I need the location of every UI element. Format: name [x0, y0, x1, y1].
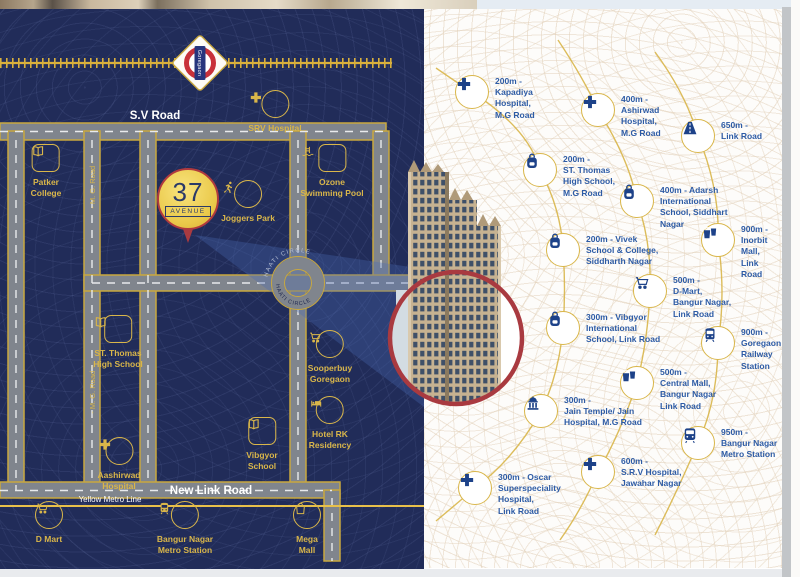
landmark-label: Patker College — [31, 177, 62, 199]
plus-icon — [261, 90, 289, 118]
map-landmark-st-thomas-high-school: ST. Thomas High School — [93, 315, 143, 370]
poi-label: 650m - Link Road — [721, 119, 762, 142]
landmark-label: Aashirwad Hospital — [98, 470, 141, 492]
map-landmark-d-mart: D Mart — [35, 501, 63, 545]
scrollbar[interactable] — [782, 7, 791, 577]
bottom-margin — [0, 569, 800, 577]
poi-label: 300m - Vibgyor International School, Lin… — [586, 311, 660, 346]
cart-icon — [35, 501, 63, 529]
poi-ashirwad-hospital: 400m - Ashirwad Hospital, M.G Road — [581, 93, 661, 139]
backpack-icon — [546, 233, 580, 267]
building-photo-sliver — [0, 0, 477, 9]
road-label-mg-road-lower: - M. G. Road - — [88, 366, 97, 414]
poi-jain-temple-jain-hospital: 300m - Jain Temple/ Jain Hospital, M.G R… — [524, 394, 642, 429]
map-graphic: HAATI CIRCLE HAATI CIRCLE Goregaon S.V R… — [0, 9, 424, 570]
station-logo-text: Goregaon — [196, 50, 202, 76]
plus-icon — [581, 455, 615, 489]
metro-icon — [681, 426, 715, 460]
poi-srv-hospital: 600m - S.R.V Hospital, Jawahar Nagar — [581, 455, 681, 490]
runner-icon — [234, 180, 262, 208]
cart-icon — [316, 330, 344, 358]
poi-label: 900m - Inorbit Mall, Link Road — [741, 223, 782, 280]
top-photo-strip — [0, 0, 800, 9]
plus-icon — [455, 75, 489, 109]
location-map-section: HAATI CIRCLE HAATI CIRCLE Goregaon S.V R… — [0, 0, 800, 577]
map-landmark-mega-mall: Mega Mall — [293, 501, 321, 556]
book-icon — [248, 417, 276, 445]
poi-label: 400m - Ashirwad Hospital, M.G Road — [621, 93, 661, 139]
project-pin: 37 AVENUE — [157, 168, 219, 243]
poi-label: 600m - S.R.V Hospital, Jawahar Nagar — [621, 455, 681, 490]
train-icon — [701, 326, 735, 360]
project-logo-number: 37 — [173, 181, 204, 204]
cart-icon — [633, 274, 667, 308]
road-label-mg-road-upper: - M. G. Road - — [88, 161, 97, 209]
poi-kapadiya-hospital: 200m - Kapadiya Hospital, M.G Road — [455, 75, 535, 121]
landmark-label: SRV Hospital — [248, 123, 301, 134]
poi-label: 300m - Oscar Superspeciality Hospital, L… — [498, 471, 561, 517]
landmark-label: Mega Mall — [296, 534, 318, 556]
road-label-sv-road: S.V Road — [130, 110, 180, 122]
plus-icon — [458, 471, 492, 505]
poi-label: 950m - Bangur Nagar Metro Station — [721, 426, 777, 461]
mall-icon — [701, 223, 735, 257]
road-label-new-link-road: New Link Road — [170, 485, 252, 497]
poi-goregaon-railway-station: 900m - Goregaon Railway Station — [701, 326, 781, 372]
map-landmark-bangur-nagar-metro-station: Bangur Nagar Metro Station — [157, 501, 213, 556]
pool-icon — [318, 144, 346, 172]
landmark-label: Ozone Swimming Pool — [300, 177, 363, 199]
bag-icon — [293, 501, 321, 529]
landmark-label: Vibgyor School — [246, 450, 278, 472]
poi-label: 200m - ST. Thomas High School, M.G Road — [563, 153, 615, 199]
goregaon-station-logo: Goregaon — [172, 35, 229, 92]
plus-icon — [581, 93, 615, 127]
landmark-label: Hotel RK Residency — [309, 429, 352, 451]
map-landmark-sooperbuy-goregaon: Sooperbuy Goregaon — [308, 330, 352, 385]
landmark-label: Joggers Park — [221, 213, 275, 224]
road-icon — [681, 119, 715, 153]
map-landmark-srv-hospital: SRV Hospital — [248, 90, 301, 134]
bed-icon — [316, 396, 344, 424]
landmark-label: Sooperbuy Goregaon — [308, 363, 352, 385]
map-landmark-ozone-swimming-pool: Ozone Swimming Pool — [300, 144, 363, 199]
backpack-icon — [546, 311, 580, 345]
poi-label: 300m - Jain Temple/ Jain Hospital, M.G R… — [564, 394, 642, 429]
poi-label: 500m - D-Mart, Bangur Nagar, Link Road — [673, 274, 731, 320]
pin-pointer-icon — [183, 229, 193, 243]
poi-label: 200m - Kapadiya Hospital, M.G Road — [495, 75, 535, 121]
map-landmark-patker-college: Patker College — [31, 144, 62, 199]
map-landmark-vibgyor-school: Vibgyor School — [246, 417, 278, 472]
building-tower — [388, 160, 501, 412]
landmark-label: Bangur Nagar Metro Station — [157, 534, 213, 556]
backpack-icon — [620, 184, 654, 218]
location-map: HAATI CIRCLE HAATI CIRCLE Goregaon S.V R… — [0, 9, 424, 570]
poi-bangur-nagar-metro-station: 950m - Bangur Nagar Metro Station — [681, 426, 777, 461]
poi-st-thomas-high-school: 200m - ST. Thomas High School, M.G Road — [523, 153, 615, 199]
poi-vibgyor-international-school: 300m - Vibgyor International School, Lin… — [546, 311, 660, 346]
project-building-image — [384, 160, 532, 412]
poi-vivek-school-college: 200m - Vivek School & College, Siddharth… — [546, 233, 658, 268]
poi-label: 900m - Goregaon Railway Station — [741, 326, 781, 372]
project-logo: 37 AVENUE — [157, 168, 219, 230]
book-icon — [32, 144, 60, 172]
label-yellow-metro-line: Yellow Metro Line — [79, 495, 142, 504]
poi-label: 500m - Central Mall, Bangur Nagar Link R… — [660, 366, 716, 412]
poi-oscar-superspeciality-hospital: 300m - Oscar Superspeciality Hospital, L… — [458, 471, 561, 517]
right-margin — [791, 0, 800, 577]
poi-inorbit-mall: 900m - Inorbit Mall, Link Road — [701, 223, 782, 280]
landmark-label: ST. Thomas High School — [93, 348, 143, 370]
map-landmark-hotel-rk-residency: Hotel RK Residency — [309, 396, 352, 451]
book-icon — [104, 315, 132, 343]
poi-label: 200m - Vivek School & College, Siddharth… — [586, 233, 658, 268]
project-logo-name: AVENUE — [165, 206, 210, 217]
map-landmark-aashirwad-hospital: Aashirwad Hospital — [98, 437, 141, 492]
poi-link-road: 650m - Link Road — [681, 119, 762, 153]
map-landmark-joggers-park: Joggers Park — [221, 180, 275, 224]
train-icon — [171, 501, 199, 529]
plus-icon — [105, 437, 133, 465]
landmark-label: D Mart — [36, 534, 62, 545]
